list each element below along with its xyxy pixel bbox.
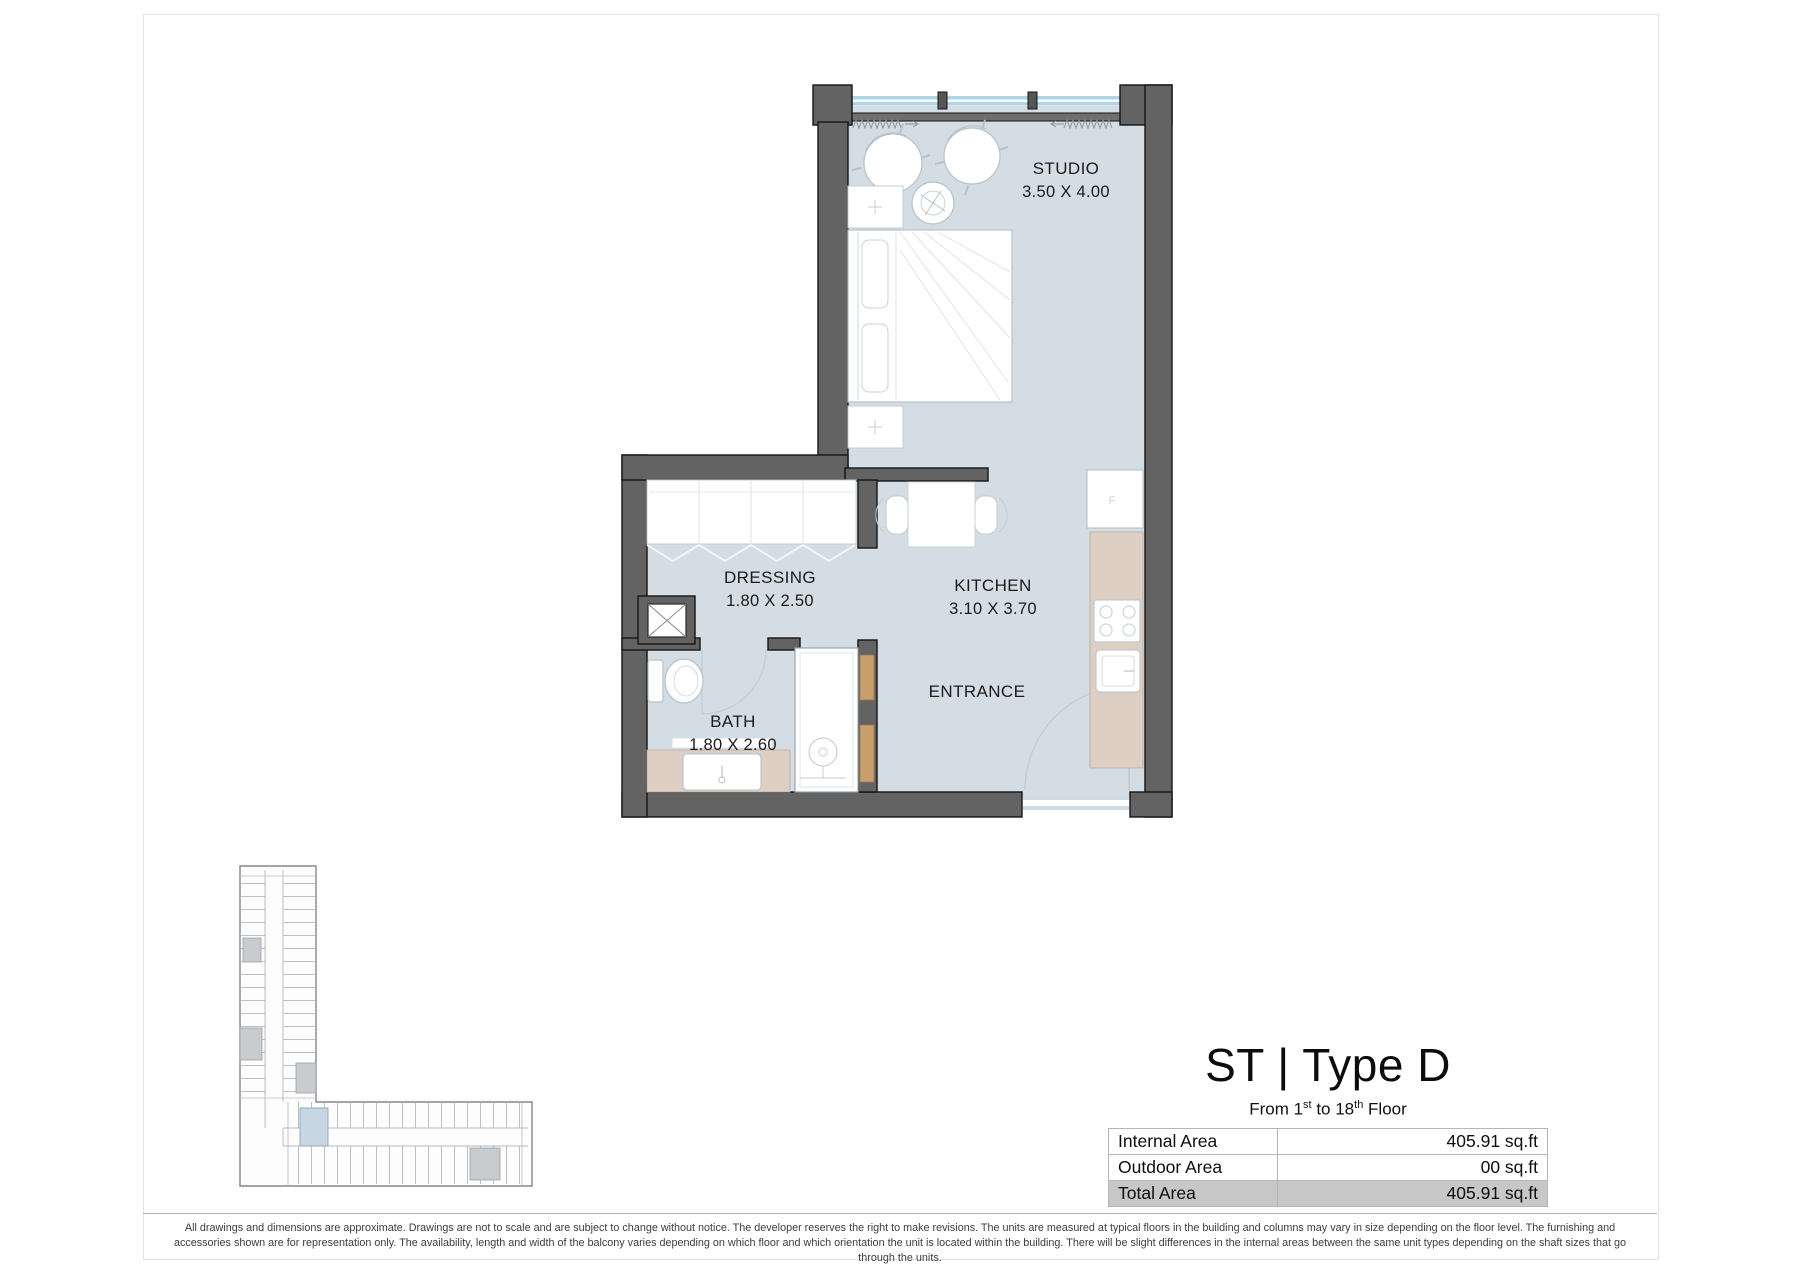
area-row-value: 00 sq.ft [1278,1155,1548,1181]
bath-label: BATH [710,712,756,731]
bed [848,230,1012,402]
unit-title: ST | Type D [1108,1040,1548,1091]
table-row-total: Total Area 405.91 sq.ft [1109,1181,1548,1207]
unit-highlight [300,1108,328,1146]
table-row: Outdoor Area 00 sq.ft [1109,1155,1548,1181]
floor-range-text: Floor [1363,1099,1406,1118]
title-block: ST | Type D From 1st to 18th Floor [1108,1040,1548,1119]
nightstand [848,406,903,448]
floor-plan-sheet: F STUDIO 3.50 X 4.00 DRESSING 1.80 X 2.5… [0,0,1800,1273]
area-table: Internal Area 405.91 sq.ft Outdoor Area … [1108,1128,1548,1207]
disclaimer-text: All drawings and dimensions are approxim… [170,1221,1630,1266]
svg-text:F: F [1109,495,1116,507]
dressing-dims: 1.80 X 2.50 [726,592,814,610]
studio-label: STUDIO [1033,159,1100,178]
building-key-plan [230,855,560,1195]
floor-range-text: to 18 [1312,1099,1355,1118]
kitchen-dims: 3.10 X 3.70 [949,600,1037,618]
footer-divider [143,1213,1657,1214]
area-row-value: 405.91 sq.ft [1278,1129,1548,1155]
side-table [912,182,954,224]
area-row-label: Internal Area [1109,1129,1278,1155]
table-row: Internal Area 405.91 sq.ft [1109,1129,1548,1155]
bath-dims: 1.80 X 2.60 [689,736,777,754]
service-shaft [638,596,695,644]
toilet [648,659,703,703]
nightstand [848,186,903,228]
area-row-label: Total Area [1109,1181,1278,1207]
kitchen-counter [1090,532,1143,768]
floor-range: From 1st to 18th Floor [1108,1099,1548,1120]
shower [795,648,858,792]
area-row-label: Outdoor Area [1109,1155,1278,1181]
floor-plan-drawing: F STUDIO 3.50 X 4.00 DRESSING 1.80 X 2.5… [600,60,1200,840]
entrance-label: ENTRANCE [929,682,1026,701]
floor-range-sup: th [1354,1099,1363,1111]
dressing-label: DRESSING [724,568,816,587]
floor-range-text: From 1 [1249,1099,1303,1118]
kitchen-label: KITCHEN [954,576,1031,595]
studio-dims: 3.50 X 4.00 [1022,183,1110,201]
floor-range-sup: st [1303,1099,1312,1111]
area-row-value: 405.91 sq.ft [1278,1181,1548,1207]
